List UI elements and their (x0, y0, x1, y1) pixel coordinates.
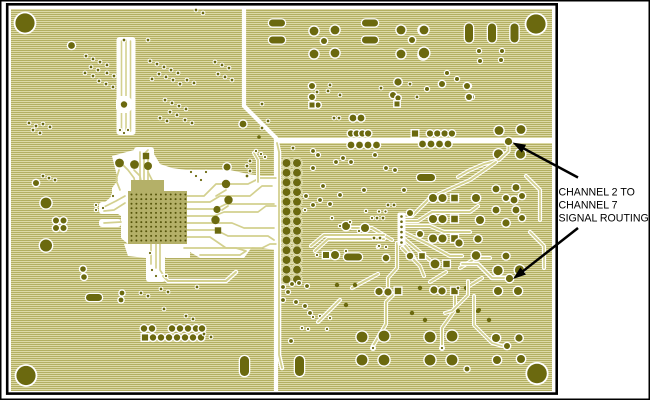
svg-text:CHANNEL 2 TO: CHANNEL 2 TO (559, 187, 635, 199)
svg-text:CHANNEL 7: CHANNEL 7 (559, 200, 618, 212)
svg-text:SIGNAL ROUTING: SIGNAL ROUTING (559, 213, 649, 225)
